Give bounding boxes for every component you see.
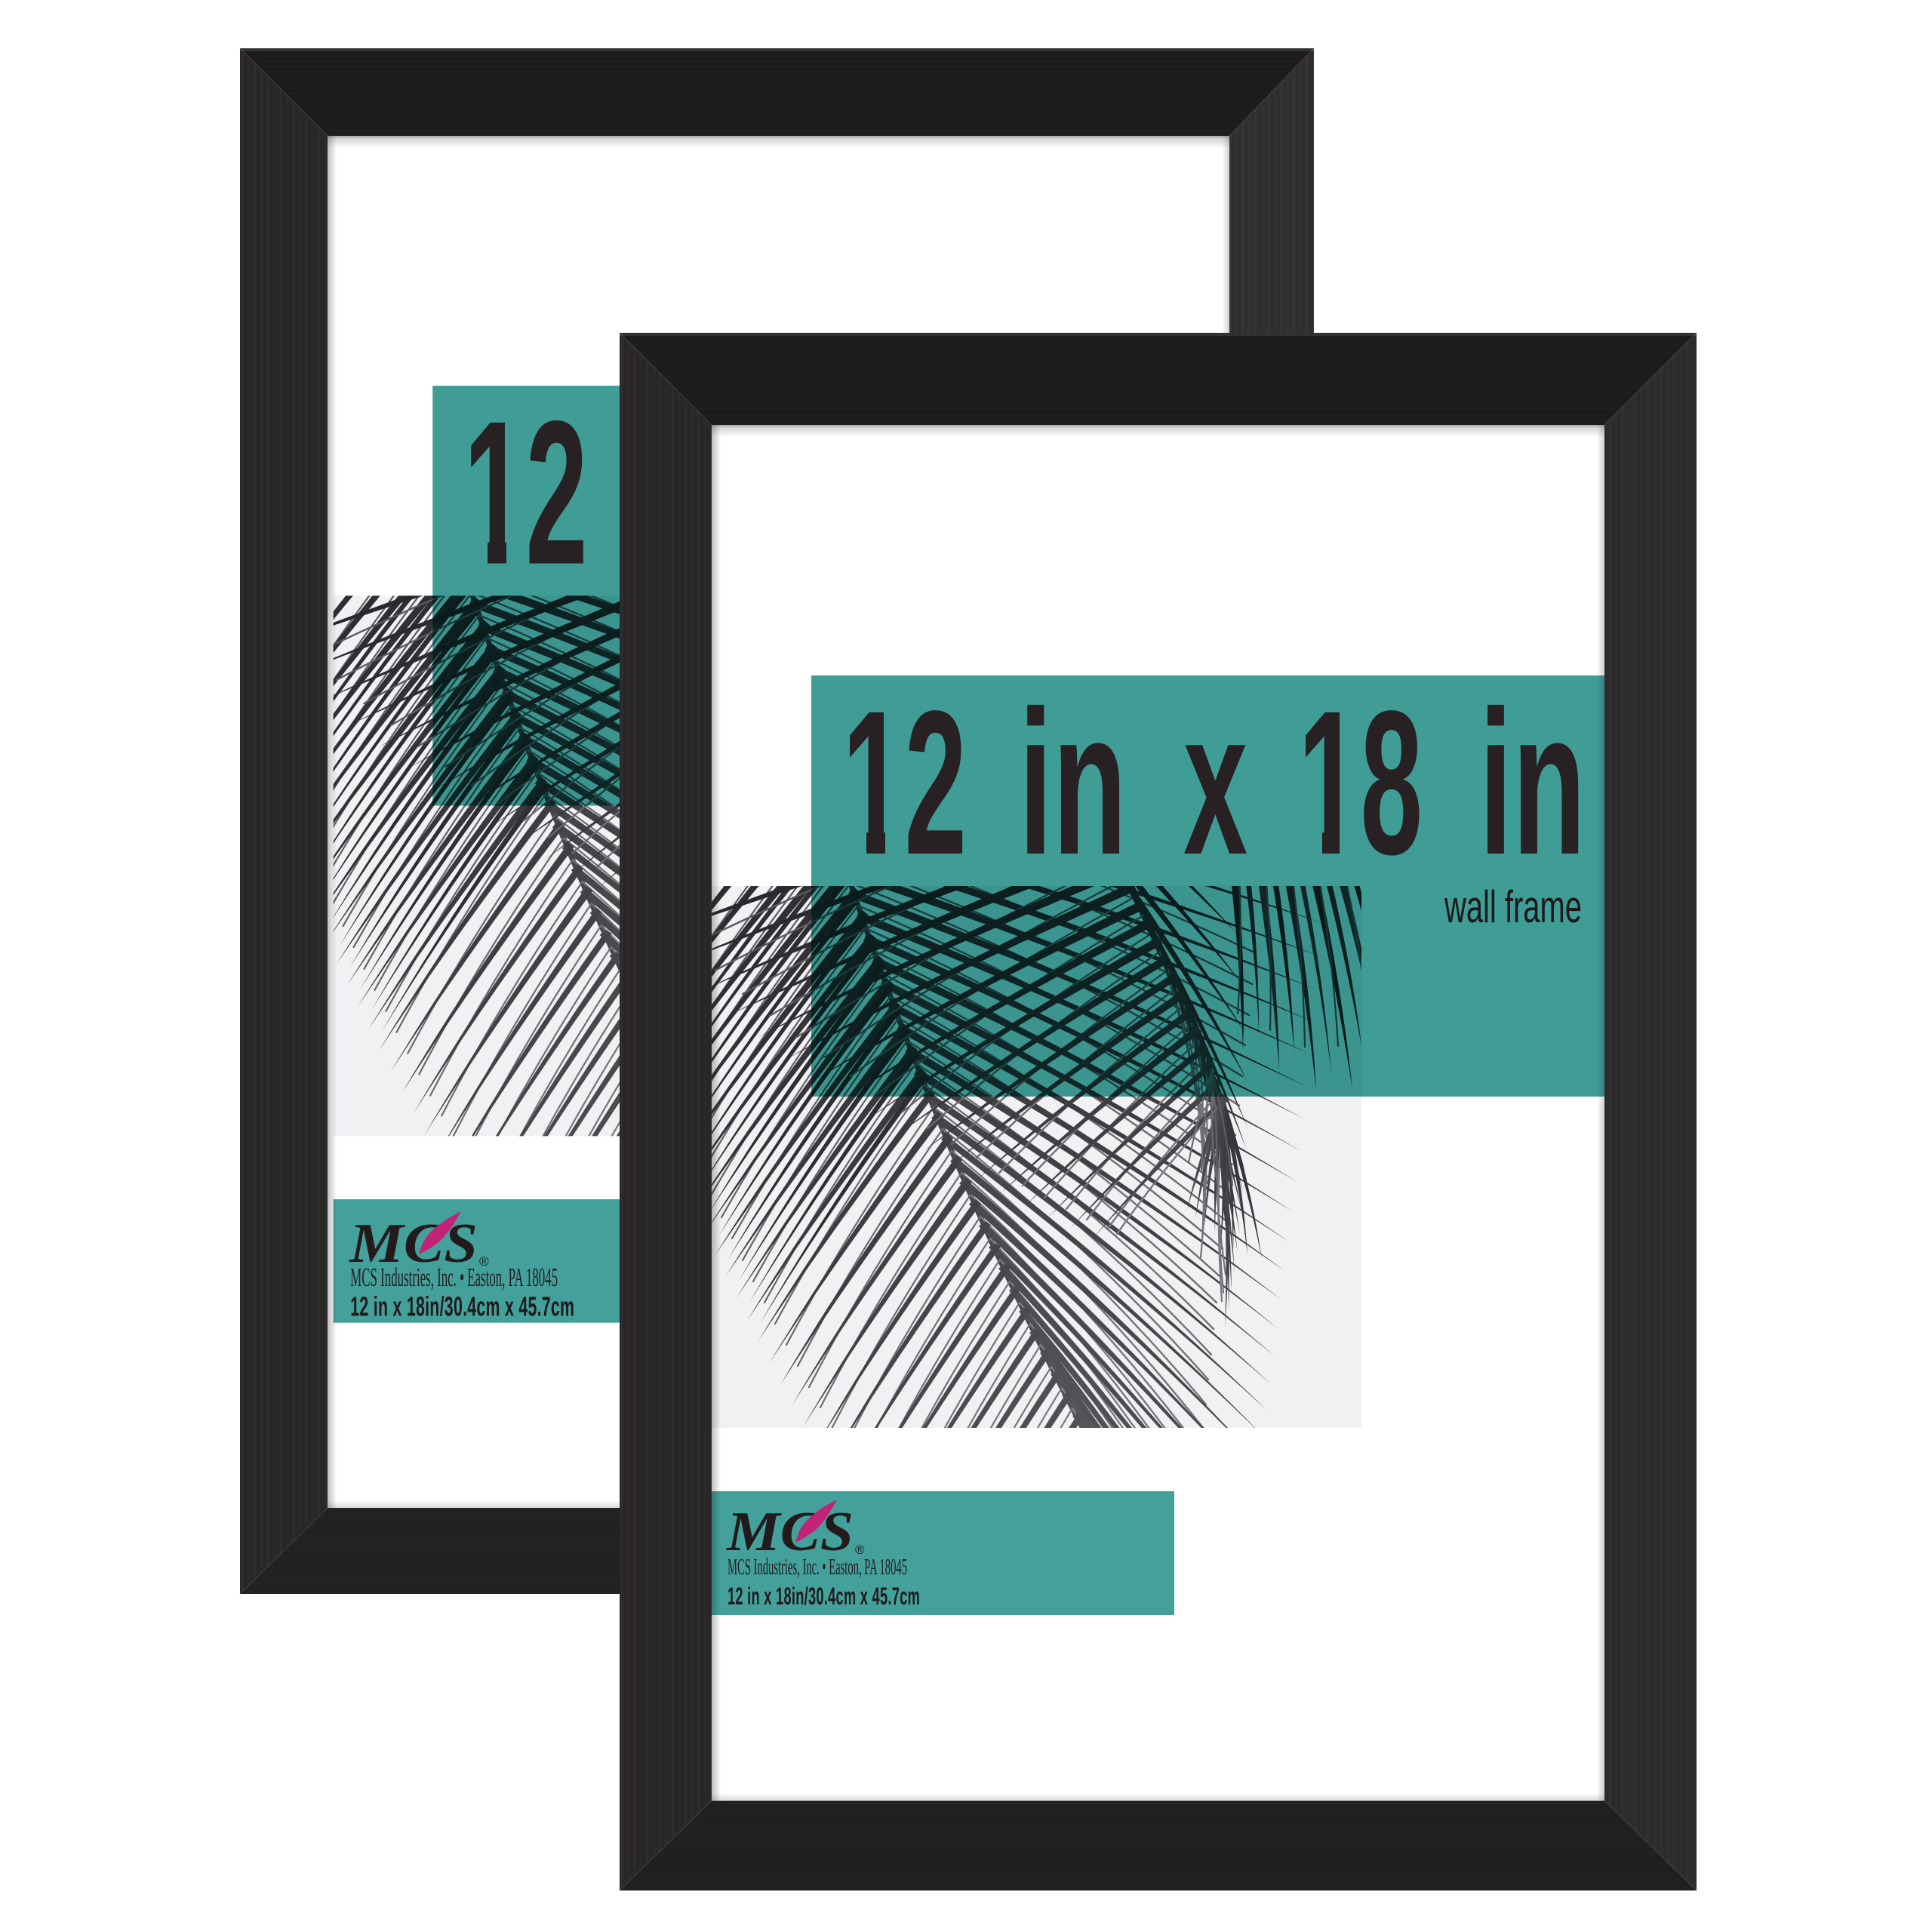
svg-text:12 in x 18in/30.4cm x 45.7cm: 12 in x 18in/30.4cm x 45.7cm	[350, 1291, 574, 1322]
svg-text:12 in x 18in/30.4cm x 45.7cm: 12 in x 18in/30.4cm x 45.7cm	[728, 1583, 920, 1610]
svg-text:MCS Industries, Inc. • Easton,: MCS Industries, Inc. • Easton, PA 18045	[350, 1262, 558, 1292]
svg-text:MCS Industries, Inc. • Easton,: MCS Industries, Inc. • Easton, PA 18045	[728, 1553, 907, 1580]
